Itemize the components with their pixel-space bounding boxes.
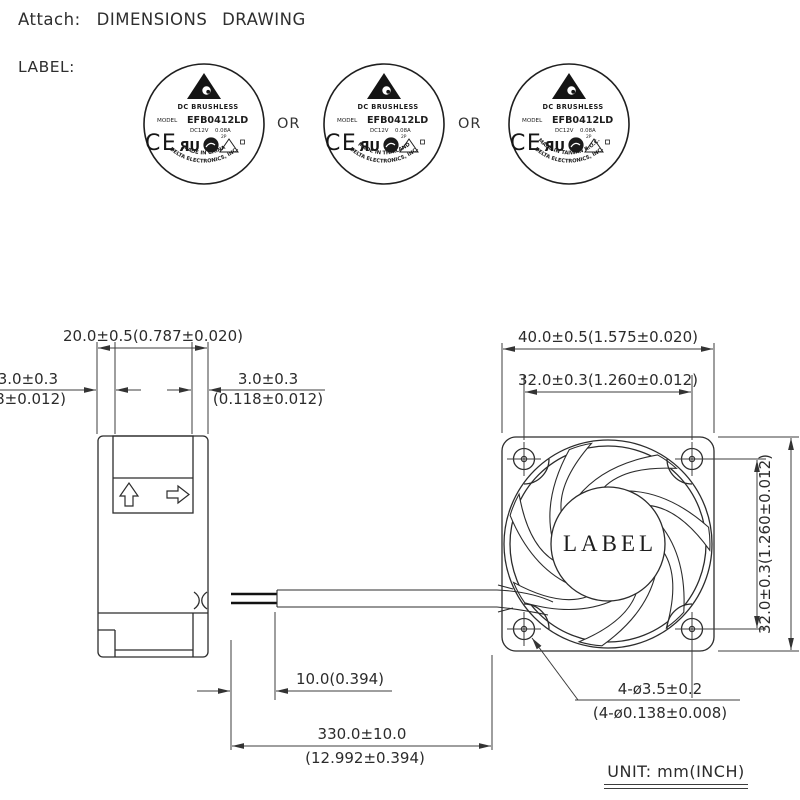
dim-flange-left: 3.0±0.3 (0.118±0.012) bbox=[0, 370, 141, 408]
dim-flange-right-inch: (0.118±0.012) bbox=[213, 390, 323, 408]
fan-front-view: LABEL bbox=[502, 436, 721, 698]
dim-lead-mm-text: 330.0±10.0 bbox=[318, 725, 407, 743]
dimensions-drawing-page: Attach: DIMENSIONS DRAWING LABEL: DC BRU… bbox=[0, 0, 800, 800]
dim-depth: 20.0±0.5(0.787±0.020) bbox=[63, 327, 243, 434]
fan-side-view bbox=[98, 436, 208, 657]
dim-width-text: 40.0±0.5(1.575±0.020) bbox=[518, 328, 698, 346]
rotation-direction-arrow-icon bbox=[167, 486, 189, 503]
dim-flange-left-inch: (0.118±0.012) bbox=[0, 390, 66, 408]
dim-depth-text: 20.0±0.5(0.787±0.020) bbox=[63, 327, 243, 345]
dim-hole-pitch-h-text: 32.0±0.3(1.260±0.012) bbox=[518, 371, 698, 389]
dimension-drawing: 20.0±0.5(0.787±0.020) 3.0±0.3 (0.118±0.0… bbox=[0, 0, 800, 800]
dim-flange-left-mm: 3.0±0.3 bbox=[0, 370, 58, 388]
airflow-direction-arrow-icon bbox=[120, 483, 138, 506]
dim-strip-text: 10.0(0.394) bbox=[296, 670, 384, 688]
dim-holes-mm-text: 4-ø3.5±0.2 bbox=[618, 680, 702, 698]
unit-note: UNIT: mm(INCH) bbox=[604, 762, 748, 789]
wire-exit-notch bbox=[194, 592, 199, 609]
dim-lead-inch-text: (12.992±0.394) bbox=[305, 749, 425, 767]
dim-hole-pitch-vertical: 32.0±0.3(1.260±0.012) bbox=[709, 454, 774, 634]
dim-flange-right: 3.0±0.3 (0.118±0.012) bbox=[167, 370, 325, 408]
dim-flange-right-mm: 3.0±0.3 bbox=[238, 370, 298, 388]
hub-label-text: LABEL bbox=[563, 531, 657, 556]
dim-hole-pitch-horizontal: 32.0±0.3(1.260±0.012) bbox=[518, 371, 698, 440]
dim-hole-pitch-v-text: 32.0±0.3(1.260±0.012) bbox=[756, 454, 774, 634]
unit-note-text: UNIT: mm(INCH) bbox=[607, 762, 744, 781]
dim-holes-inch-text: (4-ø0.138±0.008) bbox=[593, 704, 727, 722]
lead-wires bbox=[231, 585, 553, 615]
